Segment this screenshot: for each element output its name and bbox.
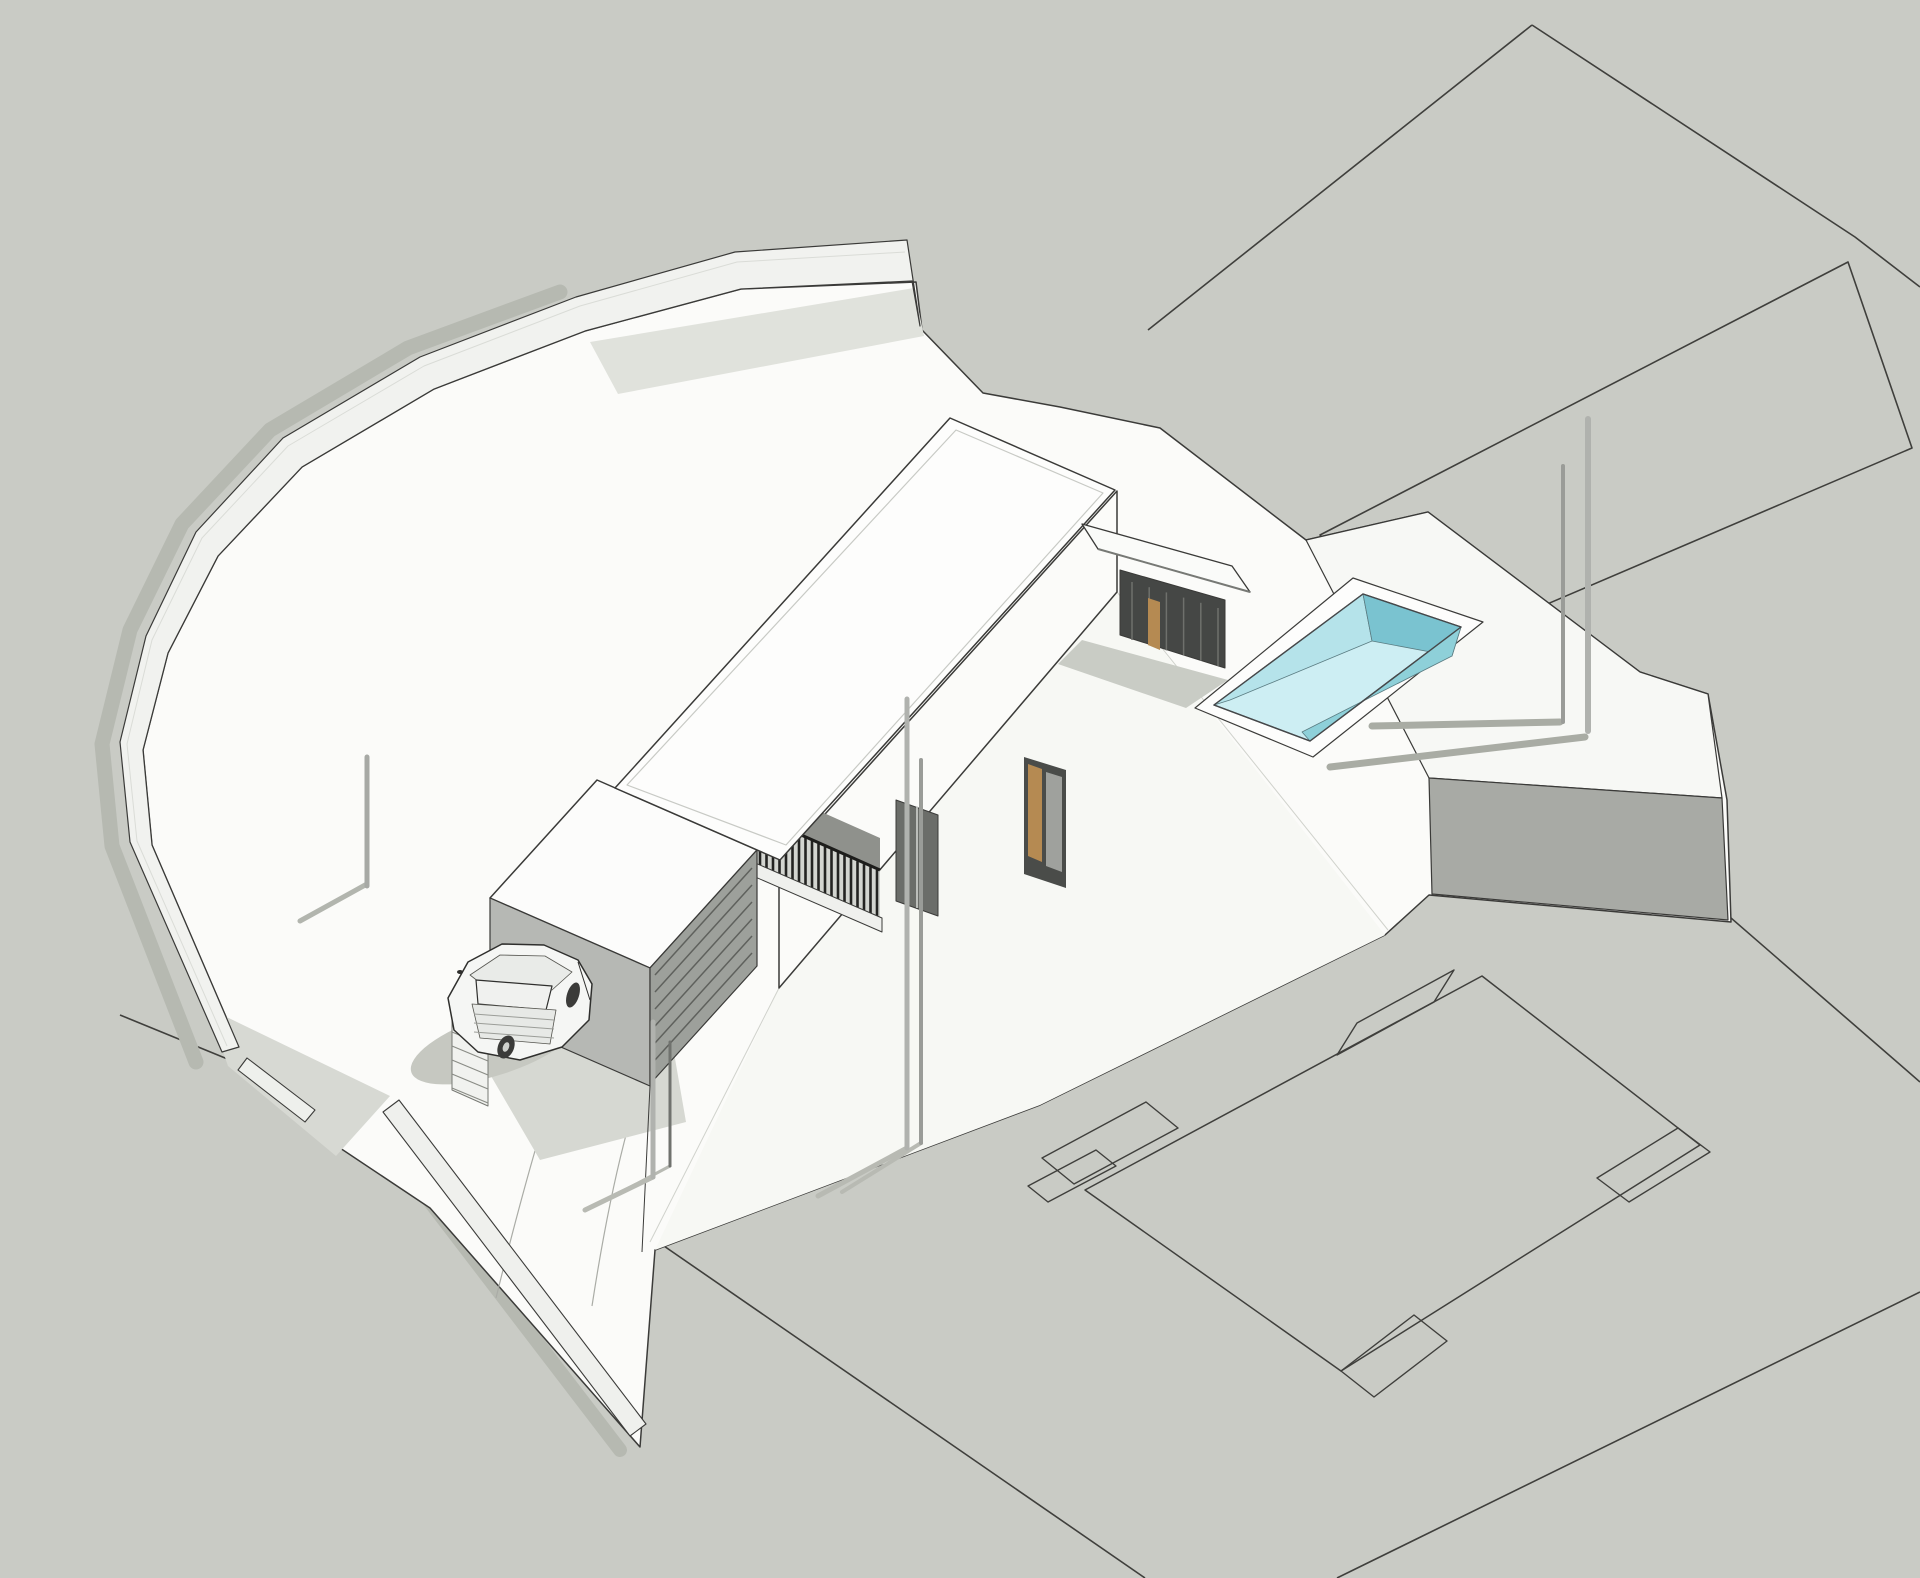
facade-door-glass bbox=[1046, 772, 1062, 872]
facade-door-tan-panel bbox=[1028, 764, 1042, 862]
car-mirror bbox=[457, 970, 463, 974]
site-model-canvas bbox=[0, 0, 1920, 1578]
entrance-door-tan-panel bbox=[1148, 598, 1160, 650]
model-viewport bbox=[0, 0, 1920, 1578]
post-shadow-right-1 bbox=[1372, 722, 1560, 726]
